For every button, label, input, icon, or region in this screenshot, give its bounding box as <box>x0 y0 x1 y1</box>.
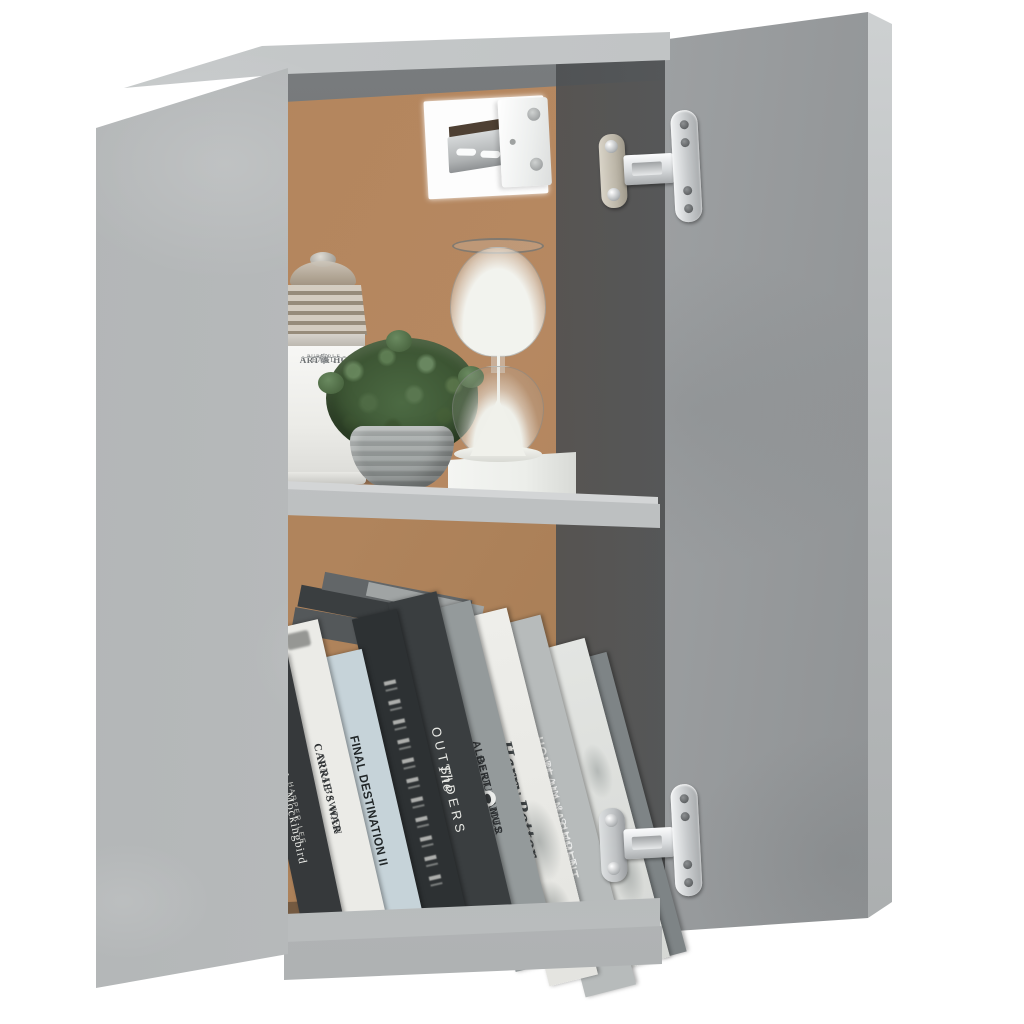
hinge-screw-hole <box>684 878 693 887</box>
hinge-door-plate <box>670 110 703 223</box>
plant-tuft <box>386 330 412 352</box>
hinge-screw <box>604 814 618 828</box>
hinge-screw-hole <box>680 138 689 147</box>
bracket-pin <box>510 139 516 145</box>
hinge-screw-hole <box>683 186 692 195</box>
bracket-block <box>497 97 552 187</box>
jar-lid <box>281 285 367 335</box>
hinge-screw-hole <box>679 120 688 129</box>
hinge-screw-hole <box>680 812 689 821</box>
hinge-screw-hole <box>684 204 693 213</box>
jar-lid-dome <box>290 261 356 287</box>
hinge-screw <box>607 188 621 202</box>
hinge-door-plate <box>670 784 703 897</box>
bracket-hole <box>527 107 541 121</box>
hinge-bottom <box>597 781 705 904</box>
spine-smudge <box>284 630 311 651</box>
bracket-slot <box>480 150 501 158</box>
hinge-arm <box>623 153 675 186</box>
product-photo-stage: ♛ ART & HO PURE BLE EARL ✻ To Kill <box>0 0 1024 1024</box>
hinge-arm <box>623 827 675 860</box>
bracket-slot <box>456 148 477 155</box>
plant-pot <box>350 426 454 490</box>
hinge-screw-hole <box>683 860 692 869</box>
bracket-hole <box>530 157 544 171</box>
wall-bracket <box>421 91 562 206</box>
hinge-screw <box>604 140 618 154</box>
hinge-screw <box>607 862 621 876</box>
hinge-top <box>597 107 705 230</box>
hinge-screw-hole <box>679 794 688 803</box>
hourglass-top-bulb <box>450 247 546 357</box>
hourglass <box>450 238 546 462</box>
plant-tuft <box>318 372 344 394</box>
